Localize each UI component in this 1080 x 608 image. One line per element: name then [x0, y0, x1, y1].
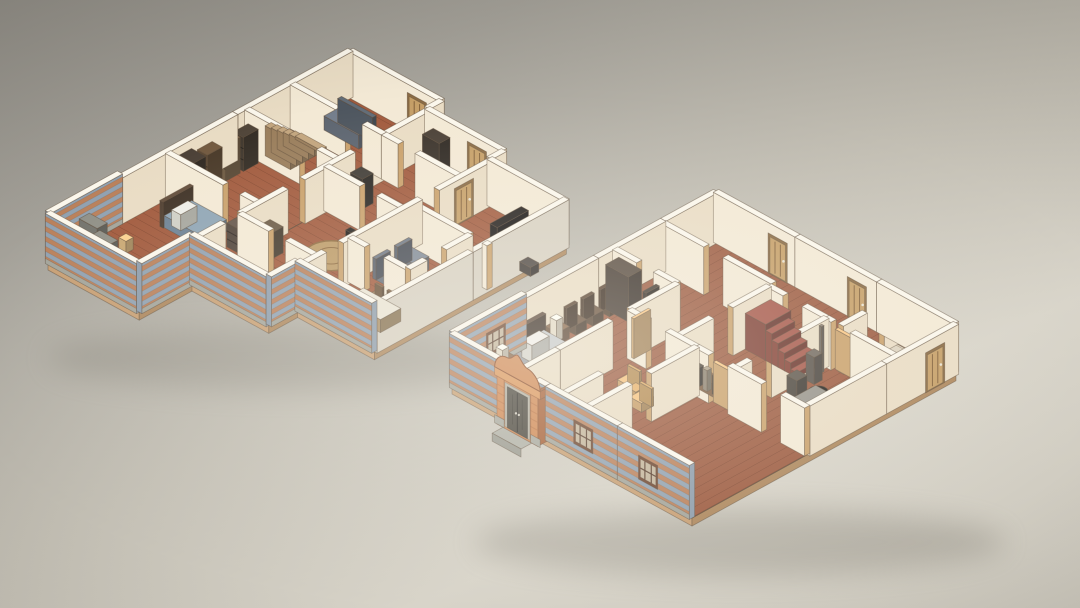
floor-plans-illustration: [0, 0, 1080, 608]
wall: [348, 235, 370, 291]
building-shadow: [475, 508, 1005, 576]
kitchen-jar-2: [806, 349, 822, 385]
isometric-cutaway-drawing: [0, 0, 1080, 608]
scene-background: { "meta": { "title": "Hand-drawn isometr…: [0, 0, 1080, 608]
wall: [381, 132, 403, 188]
open-door-leaf-1: [632, 308, 651, 359]
wall: [482, 240, 492, 290]
